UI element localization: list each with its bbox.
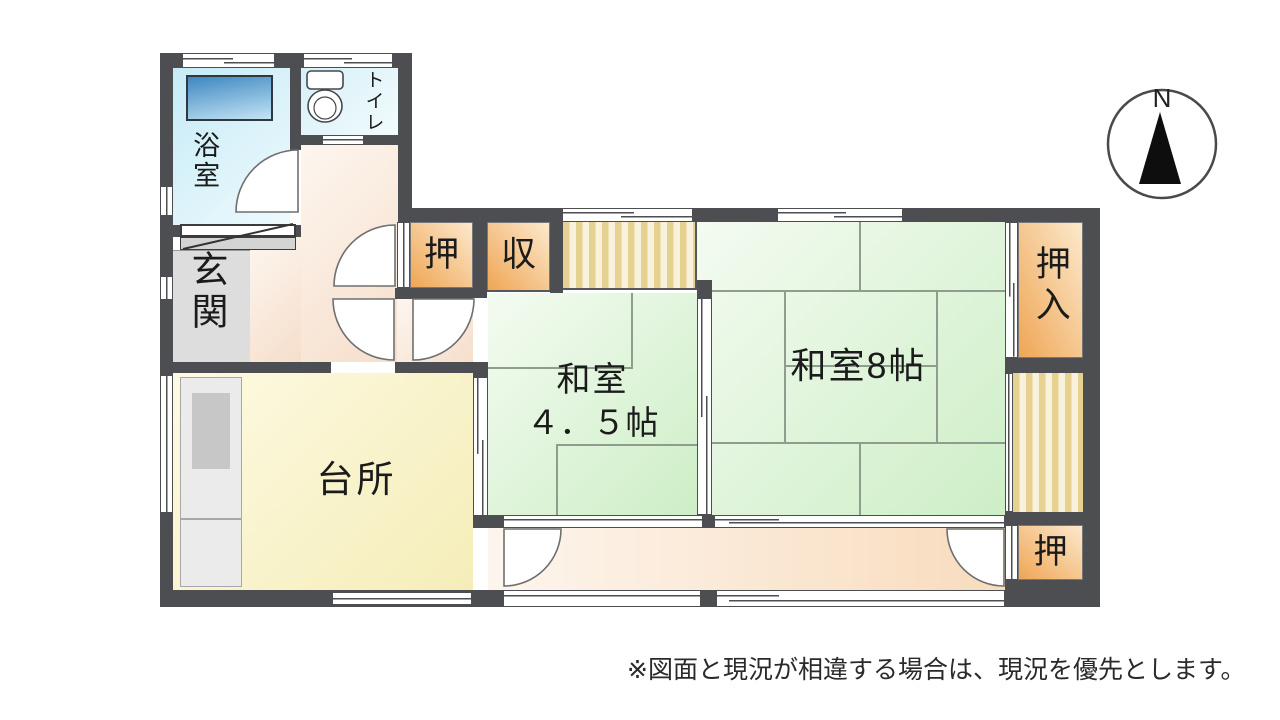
kitchen-doorway: [331, 362, 395, 373]
tatami-line: [859, 222, 861, 292]
wall-post: [473, 515, 503, 528]
toilet-door: [322, 135, 364, 145]
hallway-floor: [397, 298, 473, 362]
kitchen-counter-divider: [181, 518, 241, 520]
closet-label-shu: 収: [487, 236, 550, 274]
tatami-line: [631, 293, 633, 369]
closet-label-hall: 押: [410, 236, 473, 274]
wall-post: [700, 590, 717, 607]
corridor-window-band: [503, 590, 1005, 607]
wall: [1005, 512, 1083, 525]
room-label-washitsu-large: 和室8帖: [712, 347, 1005, 386]
wall: [1083, 208, 1100, 607]
wall: [472, 590, 503, 607]
bathroom-side-window: [160, 186, 173, 216]
room-label-toilet: トイレ: [362, 70, 383, 133]
closet-label-oshiire: 押入: [1031, 245, 1069, 327]
north-window-1: [562, 208, 693, 222]
tatami-line: [859, 442, 861, 517]
wall: [473, 362, 488, 377]
room-label-entrance: 玄関: [186, 250, 226, 334]
tatami-line: [556, 444, 697, 446]
engawa-strip-right: [1013, 373, 1083, 512]
entrance-step: [180, 237, 296, 250]
engawa-corridor-floor: [488, 528, 1005, 590]
washitsu-small-doorway: [473, 298, 488, 362]
hallway-floor: [301, 145, 398, 362]
wall: [550, 222, 563, 293]
closet-shu-bottom-line: [487, 290, 550, 292]
north-window-2: [777, 208, 903, 222]
closet-hall-door: [397, 222, 410, 288]
entrance-side-window: [160, 276, 173, 300]
wall: [398, 53, 412, 222]
wall: [473, 222, 487, 299]
closet-south-door: [1005, 525, 1018, 580]
wall: [1005, 580, 1100, 607]
floorplan-canvas: 浴室 トイレ 玄関 台所 和室 ４．５帖 和室8帖 押 収 押入 押 N ※図面…: [0, 0, 1280, 720]
corridor-shoji-band: [503, 515, 1005, 528]
wall: [160, 362, 473, 373]
room-label-kitchen: 台所: [240, 460, 473, 500]
wall: [160, 53, 173, 607]
wall: [697, 280, 712, 300]
oshiire-door: [1005, 222, 1018, 358]
toilet-window: [303, 53, 393, 68]
bathroom-window: [182, 53, 275, 68]
wall-post: [702, 515, 715, 528]
room-label-washitsu-small: 和室: [488, 362, 697, 399]
wall: [412, 208, 1100, 222]
bathtub: [186, 75, 273, 121]
north-arrow-icon: [1139, 112, 1181, 184]
tatami-line: [556, 444, 558, 517]
hallway-floor: [250, 237, 301, 362]
disclaimer-text: ※図面と現況が相違する場合は、現況を優先とします。: [627, 657, 1245, 684]
kitchen-side-window: [160, 375, 173, 513]
kitchen-south-window: [332, 592, 472, 605]
room-size-washitsu-small: ４．５帖: [478, 405, 707, 441]
closet-label-south: 押: [1018, 534, 1083, 571]
kitchen-sink: [192, 393, 230, 469]
wall: [1005, 358, 1083, 373]
engawa-top-bottom-line: [563, 288, 699, 290]
kitchen-washitsu-fusuma: [473, 377, 488, 517]
room-label-bathroom: 浴室: [189, 131, 218, 191]
engawa-right-shoji: [1005, 373, 1013, 512]
entrance-door-step: [180, 224, 296, 237]
engawa-strip-top: [563, 222, 697, 289]
compass-north-label: N: [1136, 84, 1188, 112]
